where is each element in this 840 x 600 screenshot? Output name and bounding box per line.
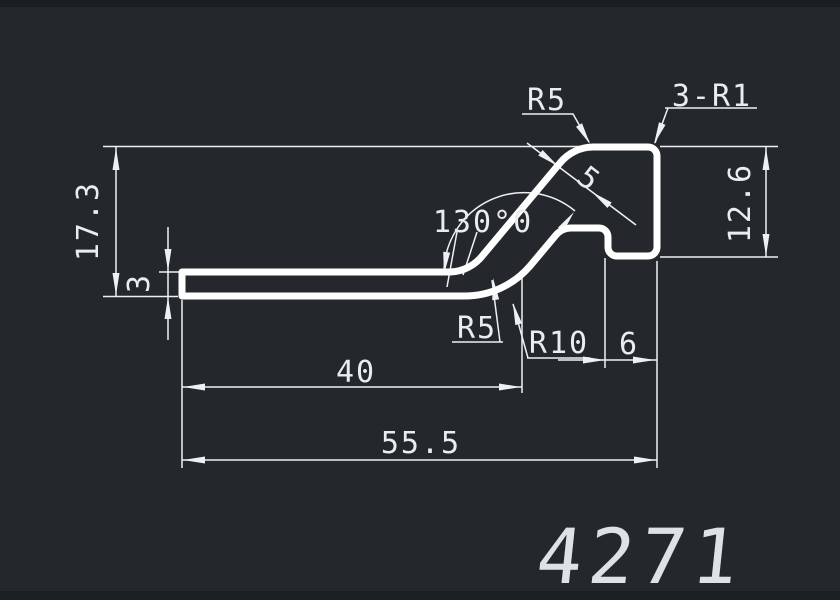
arrow-12-6-bottom [763,234,770,256]
label-head-height: 12.6 [723,163,758,243]
arrow-40-left [183,384,205,391]
extension-lines [103,143,778,468]
arrow-leader-r10 [510,302,522,325]
arrow-55-5-right [634,457,656,464]
arrow-leader-3r1 [651,122,666,145]
label-fillet-bend-lower: R10 [529,326,589,361]
label-bend-angle: 130°0 [433,205,533,240]
label-head-width: 6 [619,327,639,362]
arrow-40-right [499,384,521,391]
arrow-3-upper [165,249,172,271]
arrow-17-3-bottom [113,273,120,295]
label-total-length: 55.5 [381,426,461,461]
label-fillet-bend-upper: R5 [457,311,497,346]
part-number: 4271 [532,512,748,600]
label-corner-fillets: 3-R1 [672,79,752,114]
arrow-17-3-top [113,148,120,170]
arrow-55-5-left [183,457,205,464]
arrow-12-6-top [763,148,770,170]
label-total-height: 17.3 [71,181,106,261]
label-strip-thickness: 3 [122,273,157,293]
label-flat-length: 40 [336,355,376,390]
technical-drawing: R5 3-R1 17.3 3 130°0 5 R5 R10 12.6 6 40 … [0,0,840,600]
dimension-lines [103,108,778,468]
label-fillet-head-top: R5 [527,83,567,118]
label-slope-thickness: 5 [570,159,607,199]
arrow-leader-r5-top [576,123,593,146]
arrow-3-lower [165,297,172,319]
cad-viewport: R5 3-R1 17.3 3 130°0 5 R5 R10 12.6 6 40 … [0,0,840,600]
